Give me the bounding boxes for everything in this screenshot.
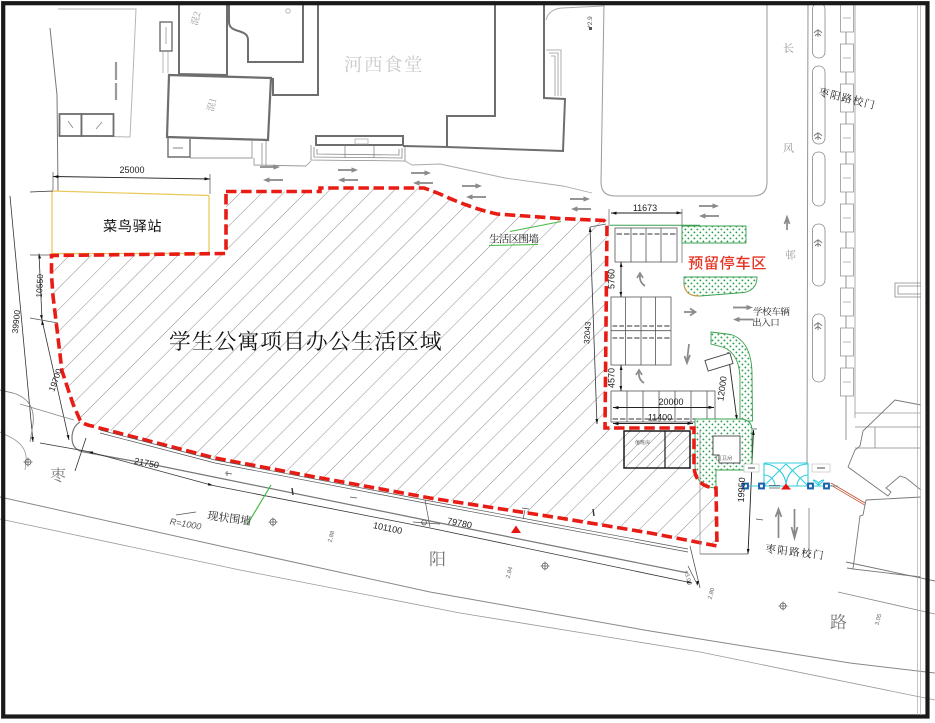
svg-text:5760: 5760 <box>607 269 617 289</box>
svg-text:20000: 20000 <box>658 397 683 407</box>
svg-text:25000: 25000 <box>119 165 144 175</box>
svg-text:10550: 10550 <box>34 274 45 298</box>
svg-text:19950: 19950 <box>736 477 747 503</box>
svg-text:11400: 11400 <box>648 413 672 423</box>
svg-text:11673: 11673 <box>633 203 657 213</box>
svg-text:4570: 4570 <box>607 368 617 388</box>
svg-text:*2.9: *2.9 <box>587 16 594 28</box>
svg-text:32043: 32043 <box>582 321 593 344</box>
